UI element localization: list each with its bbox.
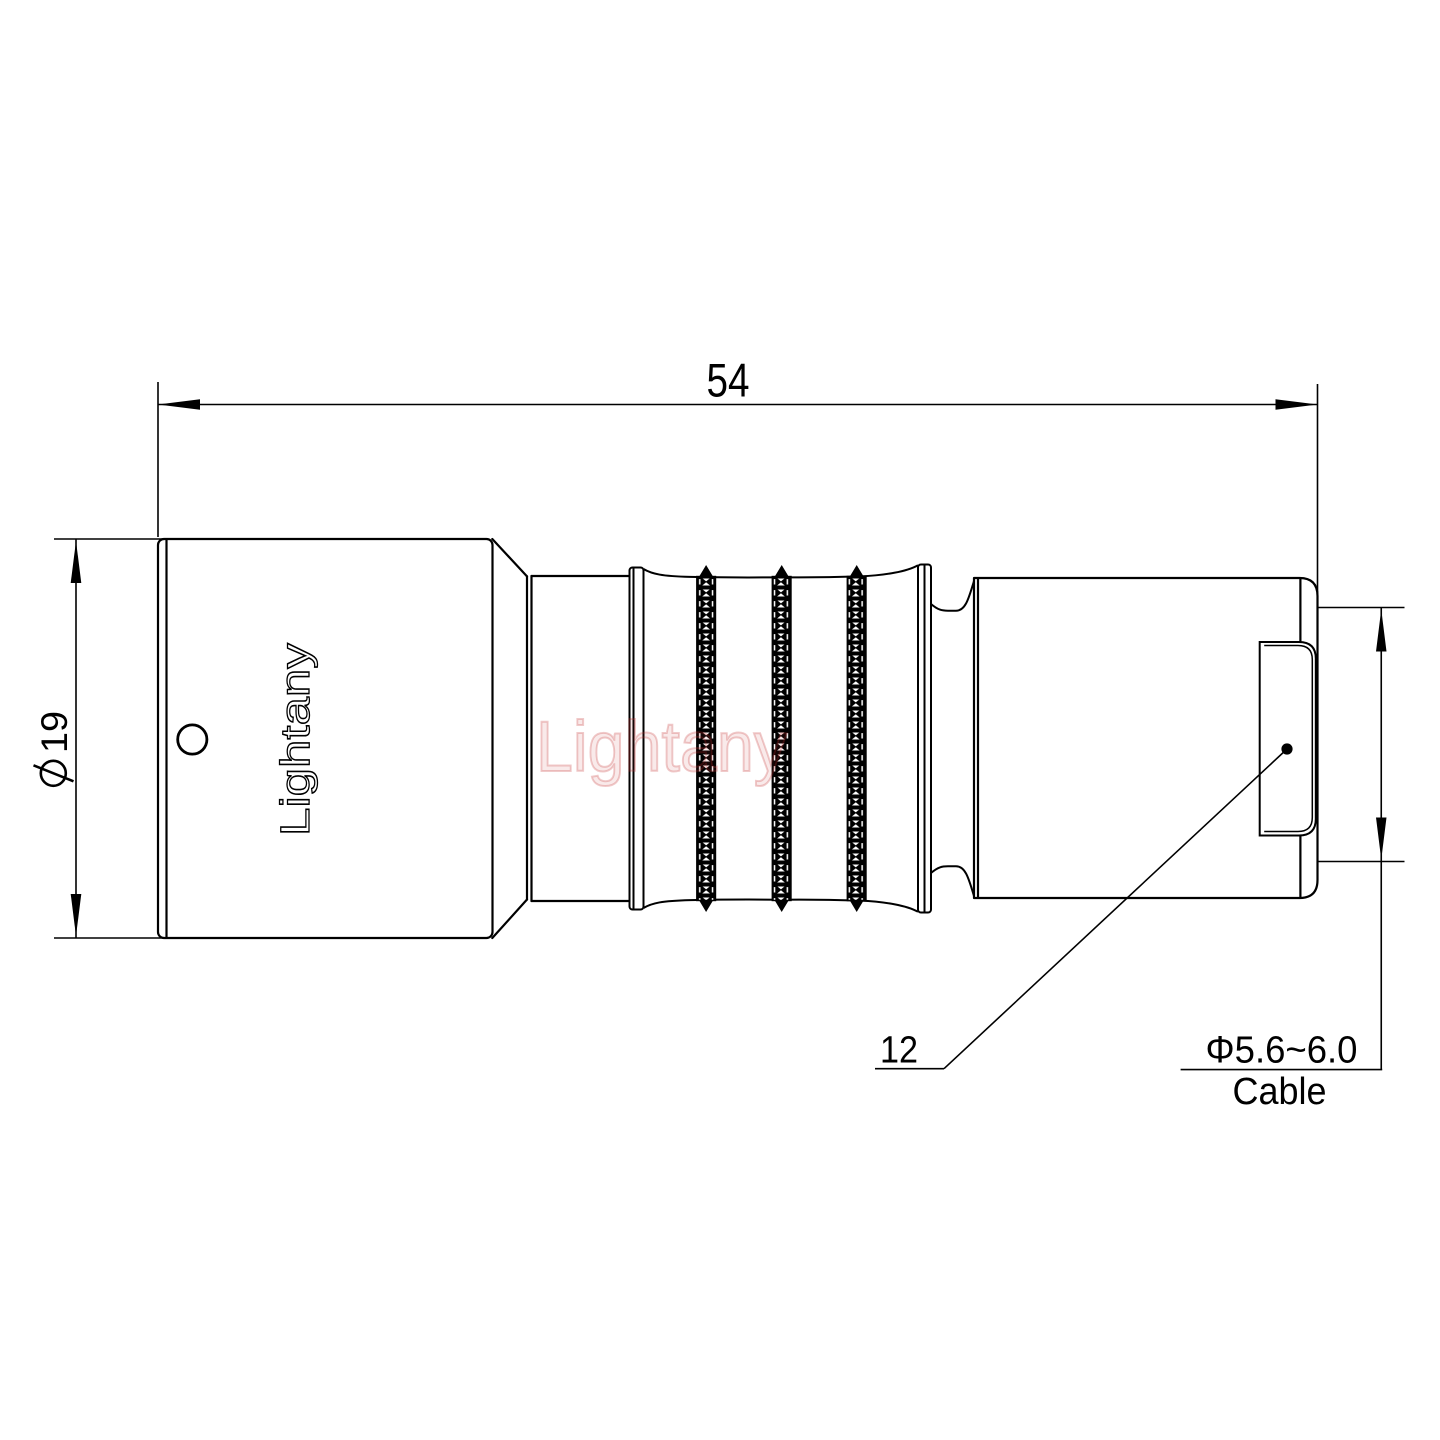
svg-text:12: 12 — [880, 1030, 918, 1072]
svg-text:Φ5.6~6.0: Φ5.6~6.0 — [1206, 1030, 1358, 1072]
svg-text:54: 54 — [707, 354, 750, 407]
svg-text:Lightany: Lightany — [536, 708, 787, 787]
svg-text:Lightany: Lightany — [272, 643, 318, 836]
svg-text:Cable: Cable — [1233, 1071, 1327, 1113]
svg-text:19: 19 — [34, 711, 75, 753]
